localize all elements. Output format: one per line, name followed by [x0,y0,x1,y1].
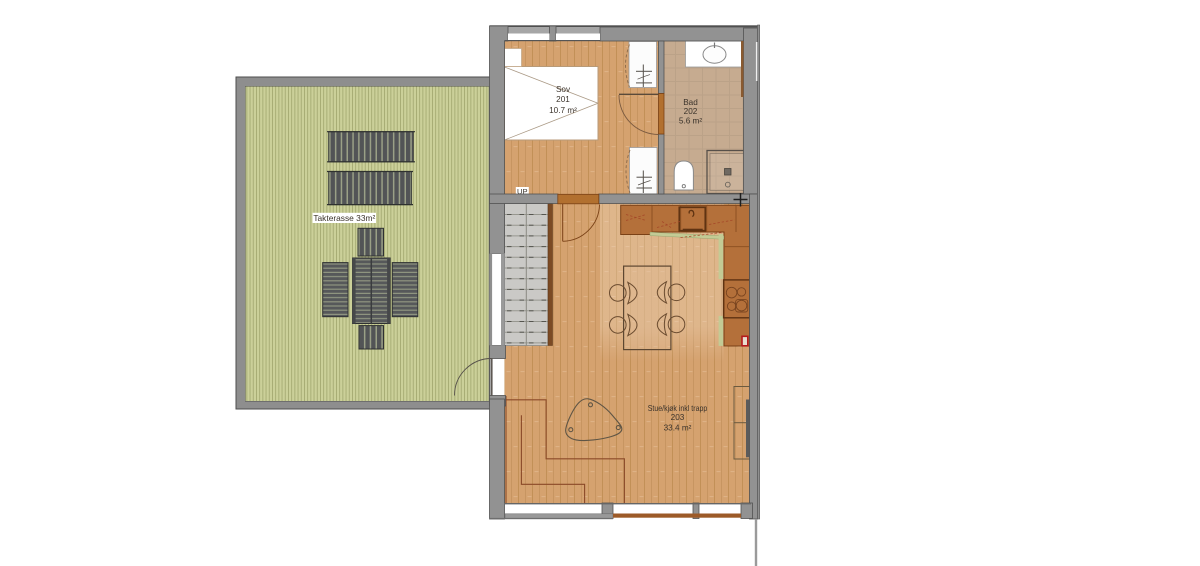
svg-text:203: 203 [671,413,685,422]
svg-text:201: 201 [556,95,570,104]
svg-text:33.4 m²: 33.4 m² [664,424,692,433]
svg-text:Stue/kjøk inkl trapp: Stue/kjøk inkl trapp [648,404,708,413]
svg-text:Sov: Sov [556,85,571,94]
svg-text:10.7 m²: 10.7 m² [549,106,577,115]
svg-text:202: 202 [684,107,698,116]
svg-text:5.6 m²: 5.6 m² [679,117,702,126]
svg-text:Takterasse 33m²: Takterasse 33m² [313,213,375,223]
svg-text:Bad: Bad [683,98,698,107]
